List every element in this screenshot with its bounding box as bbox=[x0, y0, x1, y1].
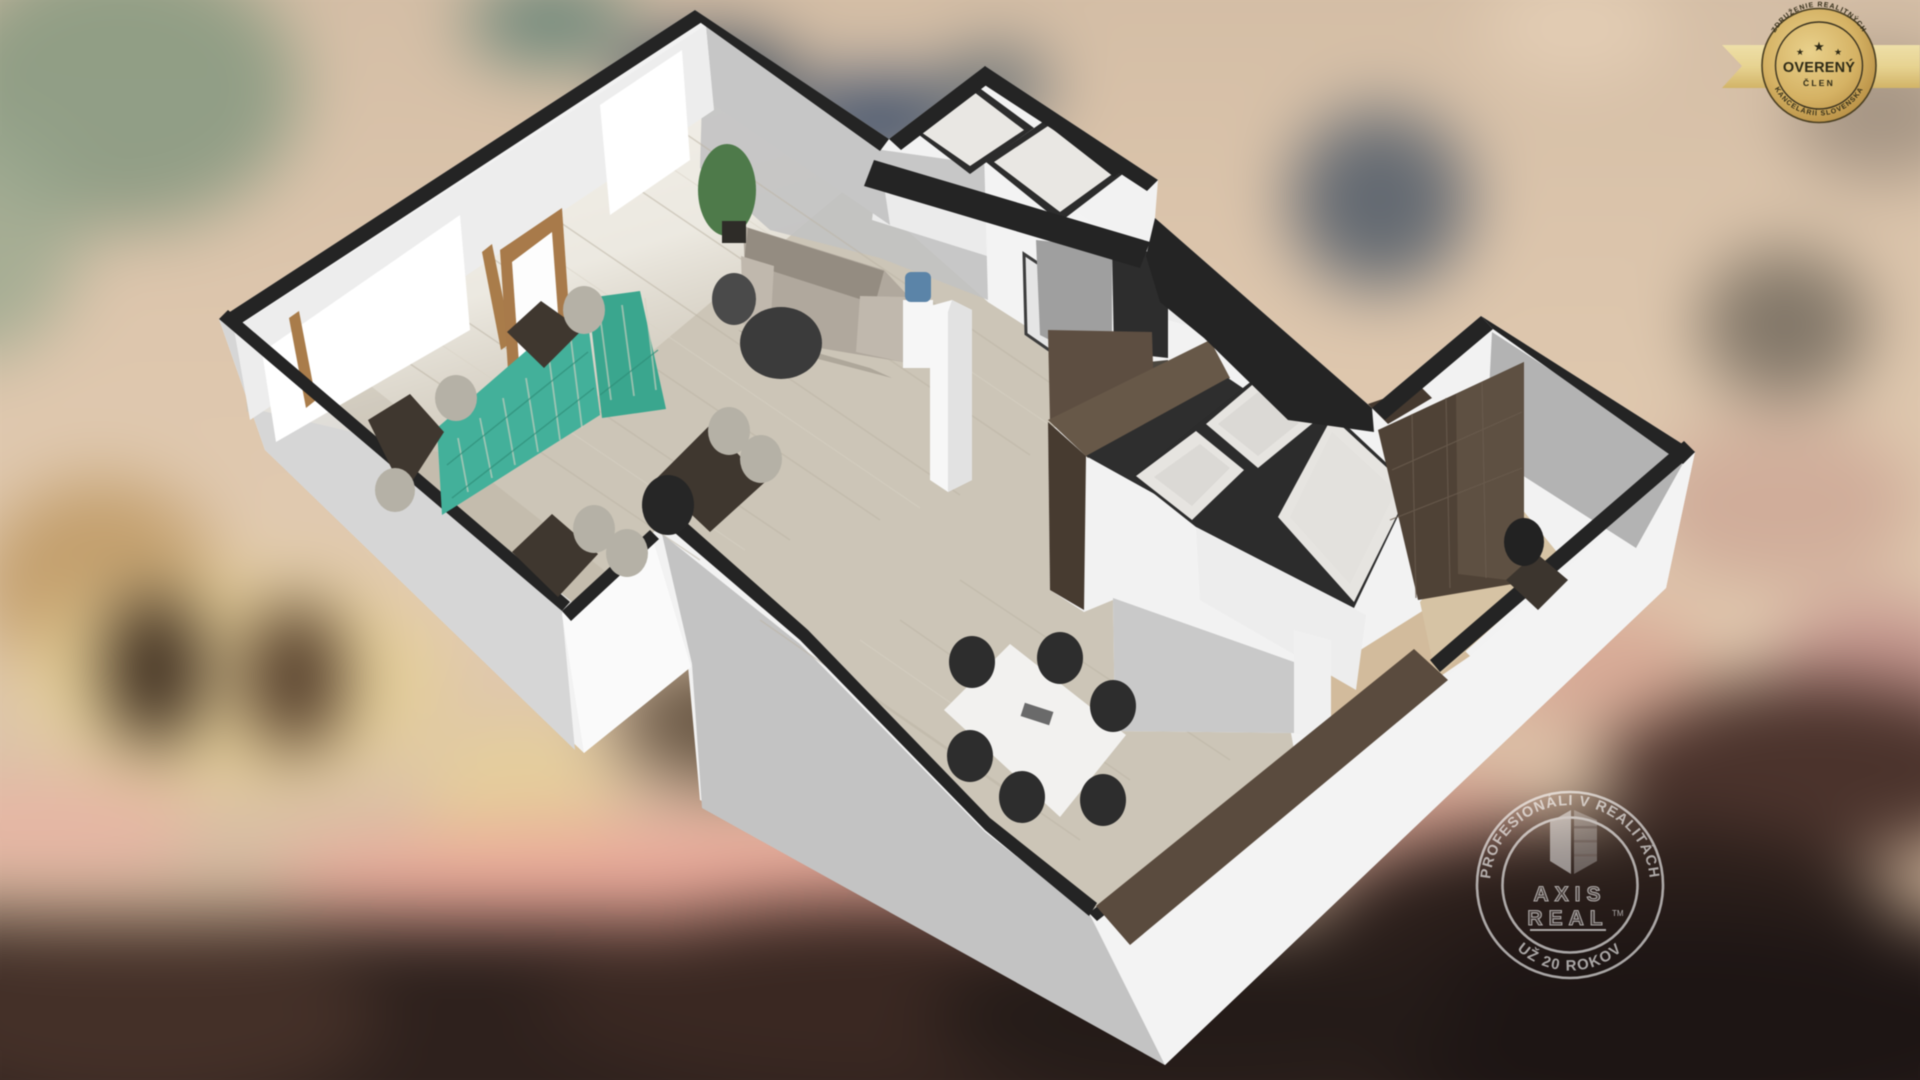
svg-text:★: ★ bbox=[1813, 39, 1825, 54]
svg-text:AXIS: AXIS bbox=[1533, 883, 1606, 906]
svg-text:OVERENÝ: OVERENÝ bbox=[1783, 58, 1855, 76]
svg-text:★: ★ bbox=[1834, 47, 1842, 57]
svg-text:★: ★ bbox=[1796, 47, 1804, 57]
svg-text:TM: TM bbox=[1612, 909, 1624, 918]
svg-text:REAL: REAL bbox=[1527, 907, 1608, 930]
svg-text:ČLEN: ČLEN bbox=[1803, 77, 1835, 88]
